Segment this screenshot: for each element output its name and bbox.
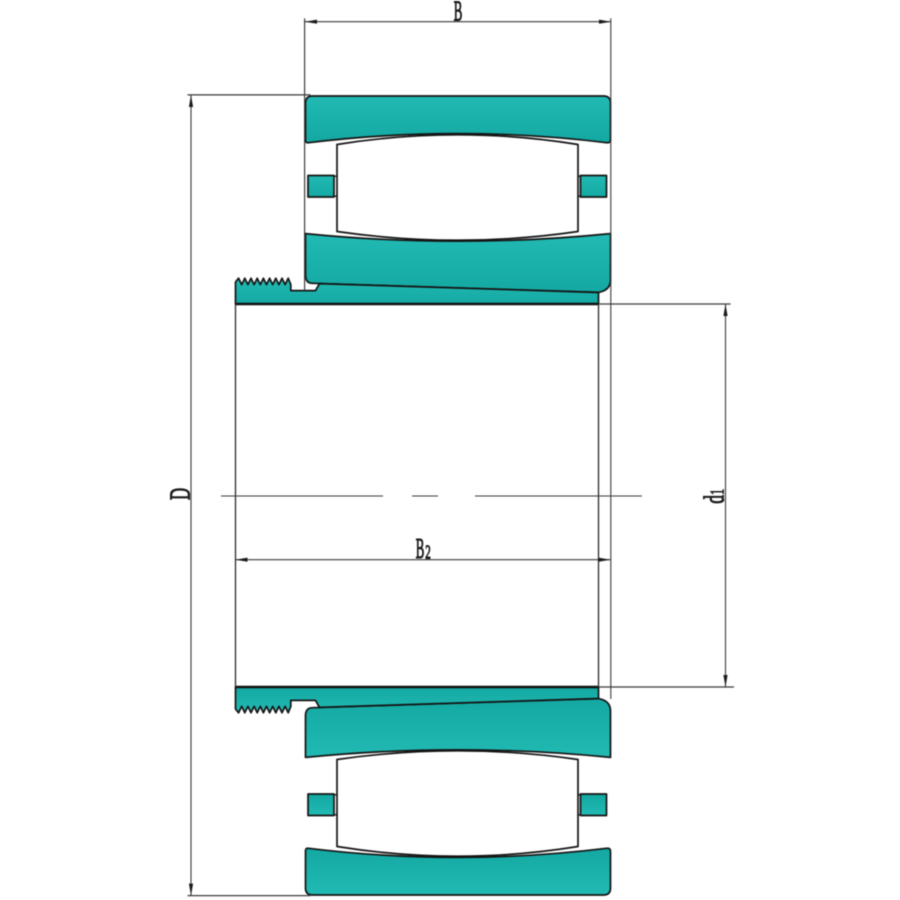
svg-text:2: 2 [425, 542, 430, 563]
svg-text:B: B [416, 533, 425, 564]
svg-text:D: D [164, 488, 196, 500]
svg-text:B: B [454, 0, 463, 27]
